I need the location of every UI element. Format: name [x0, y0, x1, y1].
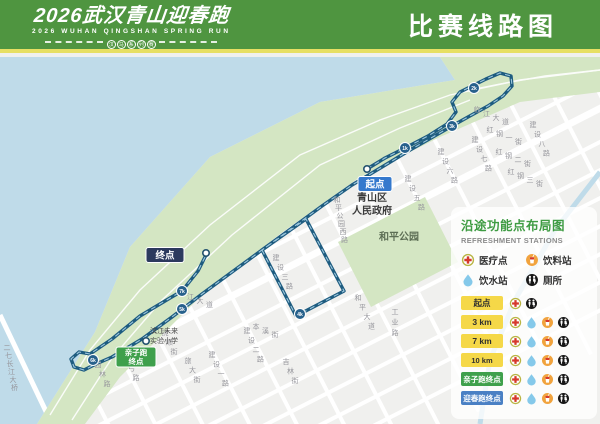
svg-text:青山区: 青山区: [357, 191, 387, 204]
series-circle: 马: [117, 40, 126, 49]
svg-text:6k: 6k: [90, 358, 96, 364]
dash-line-right: [159, 41, 217, 43]
medical-icon: [509, 297, 522, 310]
svg-text:街: 街: [171, 347, 178, 356]
svg-text:大: 大: [10, 375, 17, 384]
svg-text:大: 大: [189, 366, 196, 375]
dash-line-left: [45, 41, 103, 43]
svg-text:路: 路: [257, 355, 264, 364]
svg-text:长: 长: [7, 359, 14, 368]
svg-text:钢: 钢: [496, 129, 503, 138]
legend-row: 起点: [461, 296, 589, 310]
legend-row-icons: [509, 354, 570, 367]
svg-text:设: 设: [213, 360, 220, 369]
water-icon: [525, 354, 538, 367]
svg-text:八: 八: [539, 141, 546, 148]
medical-icon: [509, 354, 522, 367]
svg-text:工: 工: [392, 309, 399, 316]
drink-icon: [541, 316, 554, 329]
svg-text:建: 建: [273, 253, 280, 262]
svg-text:街: 街: [272, 330, 279, 339]
km-marker-5k: 5k: [177, 304, 188, 315]
svg-text:路: 路: [104, 379, 111, 388]
start-dot: [364, 166, 370, 172]
svg-text:街: 街: [536, 179, 543, 188]
toilet-icon: [557, 335, 570, 348]
svg-text:江: 江: [483, 110, 490, 118]
legend-key-label: 饮水站: [479, 273, 508, 287]
legend-row-icons: [509, 373, 570, 386]
toilet-icon: [557, 354, 570, 367]
svg-text:七: 七: [481, 154, 488, 163]
svg-text:六: 六: [447, 166, 454, 175]
svg-text:平: 平: [359, 304, 366, 312]
toilet-icon: [557, 373, 570, 386]
legend-row-badge: 10 km: [461, 353, 503, 367]
water-icon: [461, 273, 475, 287]
svg-text:路: 路: [392, 328, 399, 337]
svg-text:二: 二: [515, 157, 522, 164]
svg-text:路: 路: [543, 149, 550, 158]
park-label: 和平公园: [378, 230, 419, 243]
legend-row: 亲子跑终点: [461, 372, 589, 386]
svg-text:设: 设: [442, 157, 449, 166]
toilet-icon: [525, 297, 538, 310]
svg-text:设: 设: [476, 145, 483, 154]
legend-row-icons: [509, 392, 570, 405]
legend-row: 7 km: [461, 334, 589, 348]
svg-text:道: 道: [502, 117, 509, 126]
header-bar: 2026武汉青山迎春跑 2026 WUHAN QINGSHAN SPRING R…: [0, 0, 600, 53]
legend-key-item: 饮料站: [525, 253, 587, 267]
svg-text:五: 五: [414, 194, 421, 202]
svg-text:路: 路: [341, 235, 348, 244]
medical-icon: [509, 392, 522, 405]
medical-icon: [509, 316, 522, 329]
legend-key-label: 饮料站: [543, 253, 572, 267]
svg-text:起点: 起点: [364, 178, 385, 190]
medical-icon: [509, 373, 522, 386]
svg-text:设: 设: [534, 130, 541, 139]
svg-text:街: 街: [194, 375, 201, 384]
series-circle: 汉: [107, 40, 116, 49]
svg-text:1k: 1k: [402, 146, 408, 152]
svg-text:路: 路: [418, 203, 425, 212]
legend-row-icons: [509, 297, 538, 310]
svg-text:路: 路: [222, 379, 229, 388]
toilet-icon: [557, 392, 570, 405]
svg-text:设: 设: [277, 263, 284, 272]
svg-text:和平公园: 和平公园: [378, 230, 419, 243]
svg-text:林: 林: [99, 370, 106, 379]
svg-text:二: 二: [253, 347, 260, 354]
series-circle: 赛: [147, 40, 156, 49]
legend-key-item: 饮水站: [461, 273, 523, 287]
svg-text:大: 大: [197, 296, 204, 305]
svg-text:实验小学: 实验小学: [150, 336, 178, 345]
svg-text:三: 三: [527, 176, 534, 184]
legend-subtitle: REFRESHMENT STATIONS: [461, 236, 589, 245]
svg-text:建: 建: [530, 120, 537, 129]
svg-text:路: 路: [451, 176, 458, 185]
svg-text:一: 一: [506, 135, 513, 142]
medical-icon: [509, 335, 522, 348]
svg-text:设: 设: [248, 336, 255, 345]
svg-text:和: 和: [355, 293, 362, 302]
svg-text:终点: 终点: [128, 356, 144, 366]
svg-text:和: 和: [334, 195, 341, 204]
series-badge-circles: 汉马系列赛: [106, 33, 156, 51]
legend-key-label: 医疗点: [479, 253, 508, 267]
legend-row: 3 km: [461, 315, 589, 329]
event-logo: 2026武汉青山迎春跑 2026 WUHAN QINGSHAN SPRING R…: [32, 3, 231, 47]
svg-text:5k: 5k: [179, 307, 185, 313]
family-finish-badge: 亲子跑终点: [116, 347, 156, 367]
svg-text:旅: 旅: [185, 356, 192, 365]
svg-text:建: 建: [209, 350, 216, 359]
svg-text:街: 街: [292, 376, 299, 385]
svg-text:三: 三: [282, 273, 289, 281]
series-circle: 列: [137, 40, 146, 49]
svg-text:路: 路: [485, 164, 492, 173]
km-marker-3k: 3k: [447, 121, 458, 132]
legend-row-badge: 迎春跑终点: [461, 391, 503, 405]
km-marker-2k: 2k: [469, 83, 480, 94]
finish-badge: 终点: [146, 248, 184, 263]
legend-key-item: 医疗点: [461, 253, 523, 267]
water-icon: [525, 335, 538, 348]
svg-text:道: 道: [368, 322, 375, 331]
svg-text:建: 建: [405, 174, 412, 183]
svg-text:建: 建: [244, 326, 251, 335]
svg-text:街: 街: [524, 159, 531, 168]
svg-text:道: 道: [206, 300, 213, 309]
legend-row-badge: 亲子跑终点: [461, 372, 503, 386]
svg-text:业: 业: [392, 318, 399, 327]
svg-text:2k: 2k: [471, 86, 477, 92]
svg-text:建: 建: [438, 147, 445, 156]
km-marker-6k: 6k: [88, 355, 99, 366]
drink-icon: [541, 335, 554, 348]
event-title-cn: 2026武汉青山迎春跑: [32, 5, 230, 27]
legend-row: 迎春跑终点: [461, 391, 589, 405]
legend-row-badge: 起点: [461, 296, 503, 310]
svg-text:街: 街: [515, 137, 522, 146]
water-icon: [525, 373, 538, 386]
svg-text:建: 建: [472, 135, 479, 144]
svg-text:大: 大: [364, 312, 371, 321]
legend-row-badge: 7 km: [461, 334, 503, 348]
legend-row: 10 km: [461, 353, 589, 367]
svg-text:林: 林: [287, 367, 294, 376]
svg-text:设: 设: [409, 184, 416, 193]
svg-text:7k: 7k: [179, 289, 185, 295]
svg-text:桥: 桥: [11, 383, 18, 392]
legend-row-icons: [509, 316, 570, 329]
svg-text:滨江未来: 滨江未来: [150, 326, 178, 335]
series-badge: 汉马系列赛: [45, 37, 217, 47]
svg-text:二: 二: [4, 345, 11, 352]
family-finish-dot: [143, 338, 149, 344]
drink-icon: [541, 392, 554, 405]
toilet-icon: [525, 273, 539, 287]
legend-key: 医疗点饮料站饮水站厕所: [461, 253, 589, 287]
svg-text:大: 大: [493, 113, 500, 122]
legend-rows: 起点3 km7 km10 km亲子跑终点迎春跑终点: [461, 296, 589, 405]
svg-text:路: 路: [286, 282, 293, 291]
svg-text:钢: 钢: [505, 151, 512, 160]
legend-title: 沿途功能点布局图: [461, 215, 589, 234]
street-label: 工业路: [392, 309, 399, 337]
svg-text:平: 平: [335, 204, 342, 212]
svg-text:公: 公: [337, 212, 344, 220]
svg-text:溪: 溪: [262, 326, 269, 335]
svg-text:江: 江: [187, 293, 194, 301]
svg-text:西: 西: [340, 228, 347, 236]
drink-icon: [541, 373, 554, 386]
svg-text:3k: 3k: [449, 124, 455, 130]
svg-text:红: 红: [508, 167, 515, 176]
water-icon: [525, 316, 538, 329]
svg-text:红: 红: [496, 147, 503, 156]
svg-text:亲子跑: 亲子跑: [125, 347, 148, 357]
svg-text:4k: 4k: [297, 312, 303, 318]
svg-text:七: 七: [5, 351, 12, 360]
svg-text:吉: 吉: [283, 358, 290, 366]
legend-row-icons: [509, 335, 570, 348]
water-icon: [525, 392, 538, 405]
svg-text:红: 红: [487, 125, 494, 134]
page-title: 比赛线路图: [408, 7, 558, 43]
svg-text:路: 路: [133, 373, 140, 382]
drink-icon: [525, 253, 539, 267]
legend-row-badge: 3 km: [461, 315, 503, 329]
svg-text:一: 一: [218, 371, 225, 378]
svg-text:本: 本: [253, 322, 260, 331]
svg-text:终点: 终点: [154, 249, 175, 261]
svg-text:江: 江: [8, 368, 15, 376]
medical-icon: [461, 253, 475, 267]
km-marker-7k: 7k: [177, 286, 188, 297]
finish-dot: [203, 250, 209, 256]
legend-key-item: 厕所: [525, 273, 587, 287]
km-marker-4k: 4k: [295, 309, 306, 320]
series-circle: 系: [127, 40, 136, 49]
race-route-poster: 2026武汉青山迎春跑 2026 WUHAN QINGSHAN SPRING R…: [0, 0, 600, 424]
legend-panel: 沿途功能点布局图 REFRESHMENT STATIONS 医疗点饮料站饮水站厕…: [451, 207, 597, 419]
svg-text:人民政府: 人民政府: [352, 204, 392, 217]
km-marker-1k: 1k: [400, 143, 411, 154]
svg-text:临: 临: [474, 105, 481, 114]
svg-text:园: 园: [338, 220, 345, 228]
svg-text:钢: 钢: [517, 171, 524, 180]
toilet-icon: [557, 316, 570, 329]
legend-key-label: 厕所: [543, 273, 562, 287]
start-badge: 起点: [358, 177, 392, 192]
drink-icon: [541, 354, 554, 367]
